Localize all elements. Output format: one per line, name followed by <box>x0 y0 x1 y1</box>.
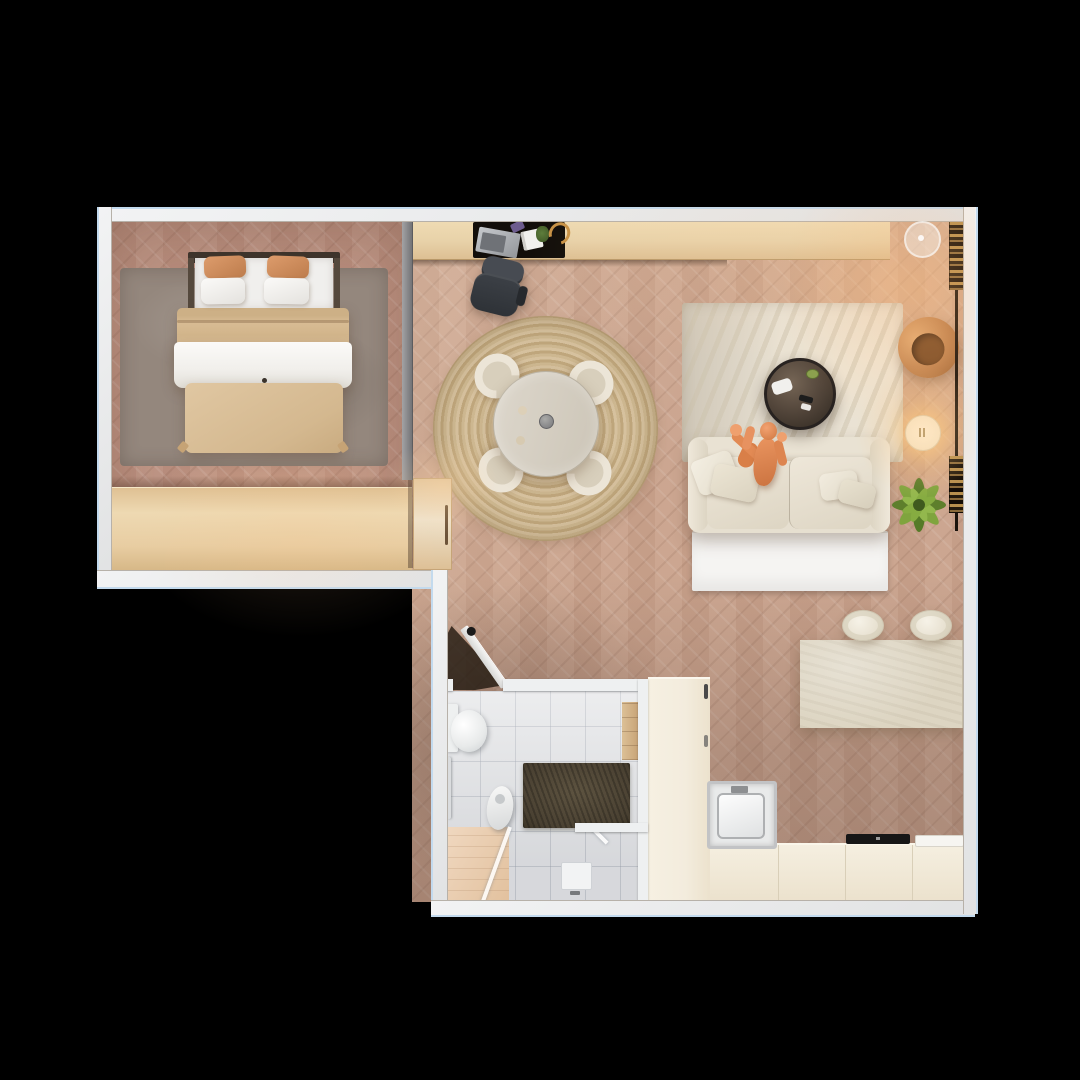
wall-bottom <box>431 900 975 917</box>
orange-pillow-left <box>204 255 247 278</box>
counter-seam-1 <box>778 845 779 902</box>
wall-bedroom-bottom <box>97 570 445 589</box>
bar-stool-left <box>842 610 884 641</box>
lamp-detail <box>919 428 927 437</box>
counter-seam-2 <box>845 845 846 902</box>
person-on-sofa <box>720 412 794 516</box>
snack-dish <box>806 369 819 379</box>
wall-notch-left <box>431 570 448 914</box>
ceiling-light-hub <box>918 235 924 241</box>
cooktop-indicator <box>876 837 880 840</box>
appliance-drum <box>717 793 765 839</box>
bed-duvet <box>185 383 343 453</box>
potted-plant <box>880 466 958 544</box>
cutting-board <box>915 835 964 847</box>
bed <box>188 250 340 456</box>
wardrobe <box>110 487 412 571</box>
book-rail <box>955 290 958 456</box>
cabinet-handle-1 <box>704 684 708 699</box>
orange-pillow-right <box>267 255 310 278</box>
sink-faucet <box>495 794 505 804</box>
tv-bench <box>692 531 888 591</box>
wall-bathroom-top <box>503 679 638 691</box>
toilet-bowl <box>451 710 487 752</box>
dark-stone-mat <box>523 763 630 828</box>
bathroom-wood-shelf <box>622 702 638 760</box>
armchair-seat <box>907 329 949 370</box>
kitchen-counter <box>710 843 963 904</box>
table-vase <box>539 414 554 429</box>
book-rail-top-books <box>949 222 964 290</box>
bathroom-wood-mat <box>445 827 509 902</box>
desk-plant-sprig <box>536 226 549 242</box>
floor-plan-stage <box>0 0 1080 1080</box>
plant-leaves <box>892 478 946 532</box>
person-head <box>760 422 777 440</box>
wall-shower-divider <box>575 823 648 832</box>
person-left-hand <box>730 424 742 436</box>
counter-seam-3 <box>912 845 913 902</box>
drain-handle <box>570 891 580 895</box>
table-candle-1 <box>518 406 527 415</box>
wall-right <box>963 207 978 914</box>
wall-left <box>97 207 112 586</box>
floor-lamp <box>905 415 941 451</box>
ceiling-light <box>904 221 941 258</box>
white-pillow-right <box>264 278 309 305</box>
person-right-hand <box>777 432 787 442</box>
kitchen-tall-cabinet <box>648 677 710 904</box>
bedroom-door-handle <box>445 505 448 545</box>
wall-bedroom-divider <box>402 218 413 480</box>
table-candle-2 <box>516 436 525 445</box>
white-pillow-left <box>201 278 245 305</box>
bar-stool-right <box>910 610 952 641</box>
wall-top <box>97 207 975 222</box>
blanket-fold <box>177 320 349 323</box>
cabinet-handle-2 <box>704 735 708 747</box>
wall-bathroom-right <box>638 679 648 902</box>
appliance-label <box>731 786 748 793</box>
kitchen-island <box>800 640 964 728</box>
shower-drain <box>561 862 592 890</box>
